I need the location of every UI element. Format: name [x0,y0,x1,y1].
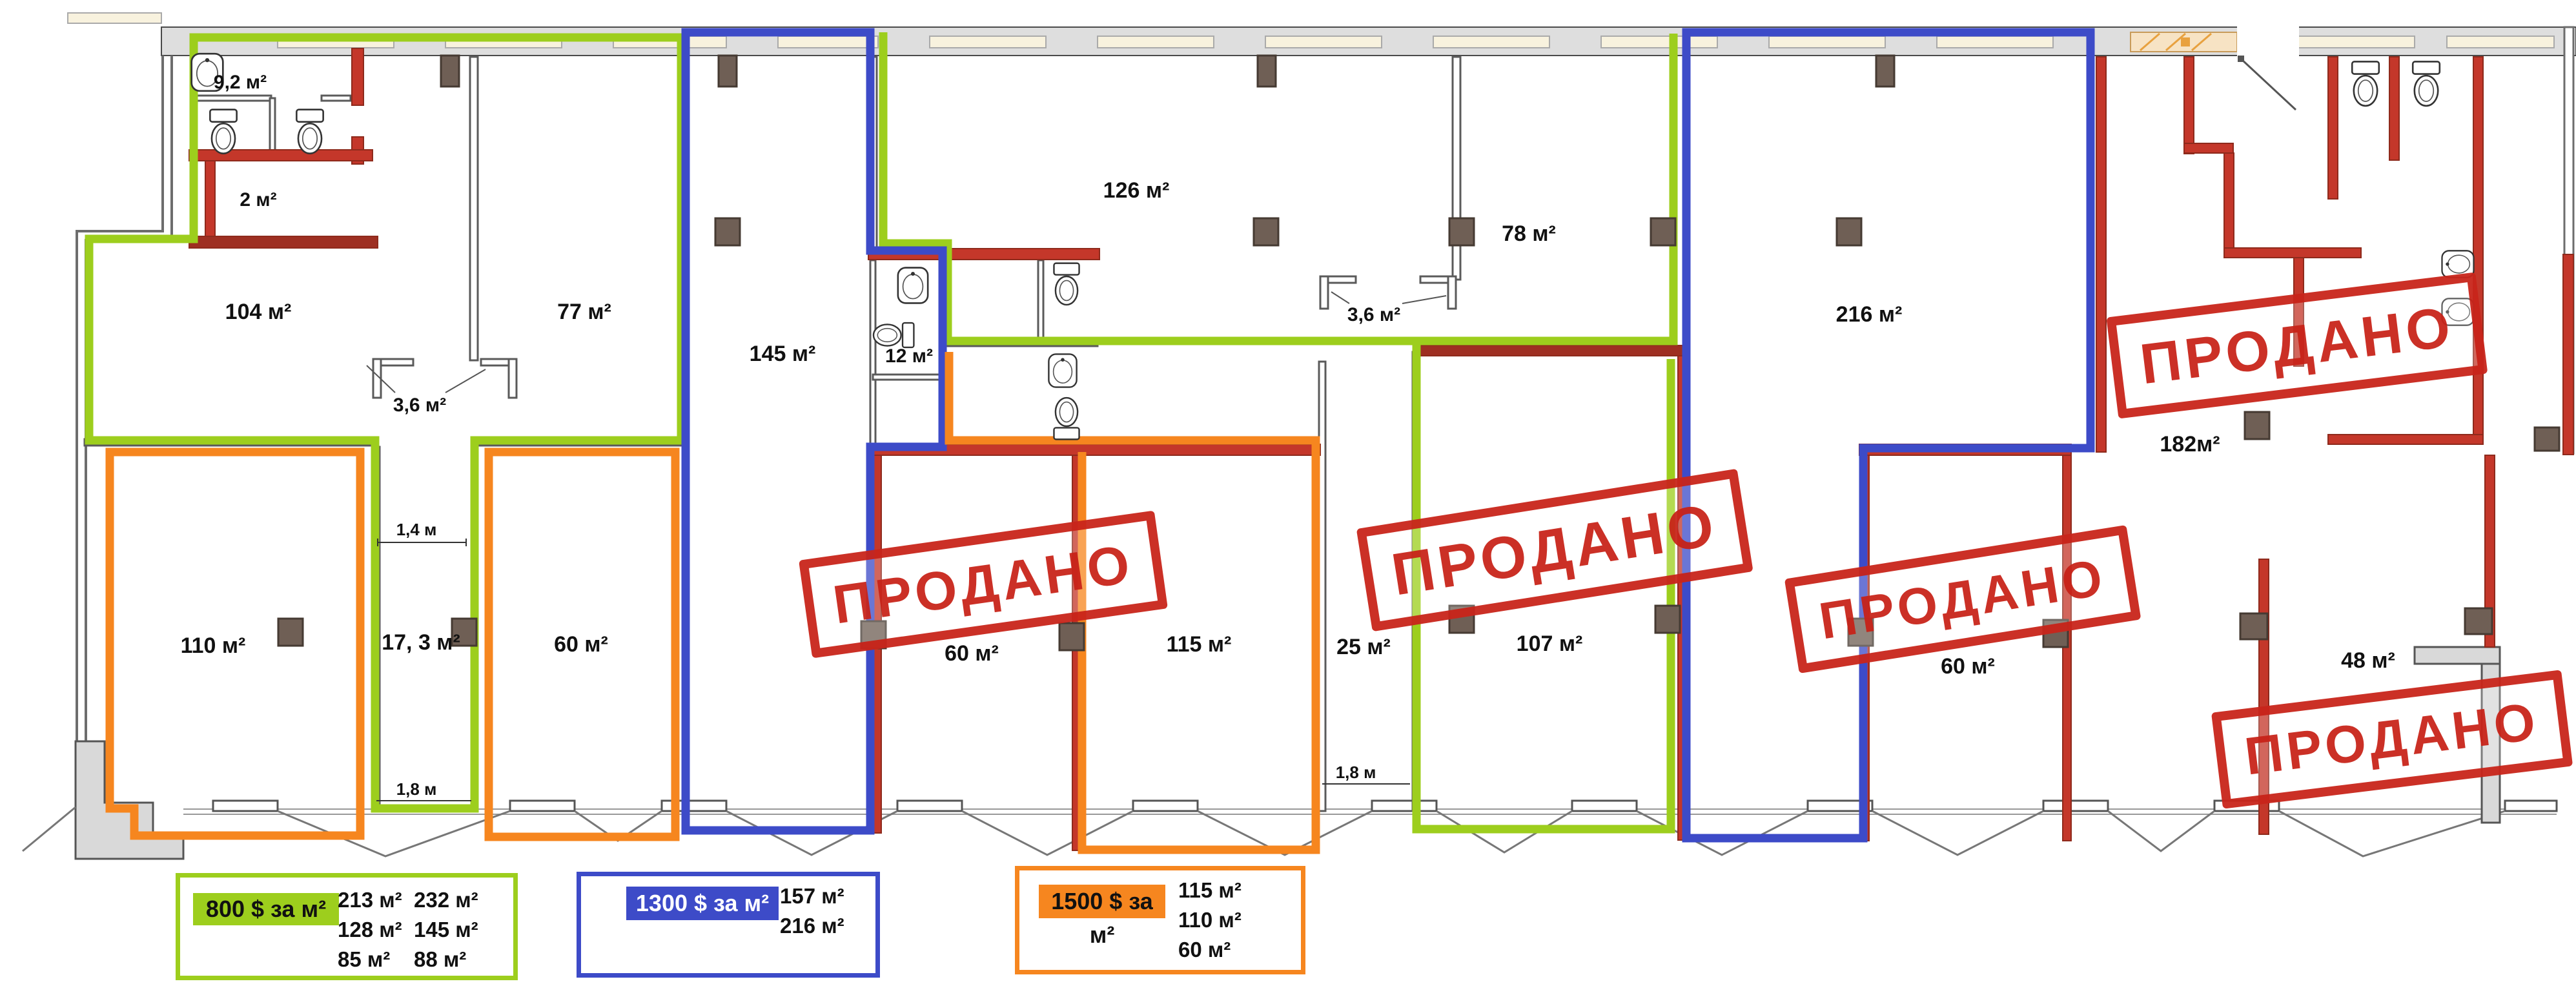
room-label-3-6-a: 3,6 м² [393,396,446,415]
interior-thin-walls [85,57,1460,811]
sink-icon [898,268,928,303]
toilet-icon [2413,61,2440,105]
toilet-icon [1054,398,1079,439]
legend-area: 88 м² [414,945,478,974]
legend-area: 115 м² [1178,876,1242,905]
room-label-12: 12 м² [885,347,933,366]
sold-stamp-text: ПРОДАНО [2136,294,2457,398]
room-label-104: 104 м² [225,301,292,323]
legend-blue-areas: 157 м² 216 м² [780,881,844,941]
room-label-216: 216 м² [1836,303,1903,325]
legend-area: 60 м² [1178,935,1242,965]
legend-green-areas-col2: 232 м² 145 м² 88 м² [414,885,478,974]
legend-area: 213 м² [338,885,402,915]
room-label-60-c: 60 м² [1941,655,1995,677]
legend-area: 216 м² [780,911,844,941]
room-label-115: 115 м² [1167,633,1232,655]
room-label-110: 110 м² [181,635,246,657]
legend-area: 157 м² [780,881,844,911]
unit-outline-green-middle [883,32,1673,341]
plan-drawing [0,0,2576,997]
legend-area: 128 м² [338,915,402,945]
room-label-60-a: 60 м² [554,633,608,655]
unit-outline-blue-216 [1686,32,2090,838]
legend-area: 145 м² [414,915,478,945]
toilet-icon [210,110,236,154]
floor-plan: 9,2 м² 2 м² 104 м² 77 м² 3,6 м² 145 м² 1… [0,0,2576,997]
unit-outline-green-left [89,37,681,808]
toilet-icon [2352,61,2379,105]
legend-area: 110 м² [1178,905,1242,935]
legend-area: 232 м² [414,885,478,915]
toilet-icon [1054,263,1079,305]
hatched-window [2131,32,2237,52]
room-label-60-b: 60 м² [945,642,999,664]
legend-blue-price-chip: 1300 $ за м² [626,887,779,920]
room-label-3-6-b: 3,6 м² [1347,305,1400,325]
dimension-label-1-8-right: 1,8 м [1336,764,1376,781]
sold-stamp-text: ПРОДАНО [2242,691,2542,787]
legend-area: 85 м² [338,945,402,974]
room-label-182: 182м² [2160,433,2220,455]
room-label-9-2: 9,2 м² [214,73,267,92]
toilet-icon [296,110,323,154]
legend-orange-price-chip: 1500 $ за м² [1039,885,1165,918]
room-label-48: 48 м² [2341,650,2395,672]
legend-orange-1500: 1500 $ за м² 115 м² 110 м² 60 м² [1015,866,1305,974]
room-label-2: 2 м² [240,190,276,210]
toilet-icon [874,323,914,347]
room-label-145: 145 м² [750,343,816,365]
sink-icon [1048,354,1076,387]
legend-green-800: 800 $ за м² 213 м² 128 м² 85 м² 232 м² 1… [176,873,518,980]
room-label-107: 107 м² [1517,633,1583,655]
legend-blue-1300: 1300 $ за м² 157 м² 216 м² [577,872,880,978]
room-label-77: 77 м² [557,301,611,323]
legend-green-price-chip: 800 $ за м² [193,893,339,925]
room-label-17-3: 17, 3 м² [382,632,460,653]
dimension-label-1-4: 1,4 м [396,521,437,538]
legend-orange-areas: 115 м² 110 м² 60 м² [1178,876,1242,965]
room-label-126: 126 м² [1103,180,1170,201]
legend-green-areas-col1: 213 м² 128 м² 85 м² [338,885,402,974]
room-label-25: 25 м² [1336,636,1391,658]
dimension-label-1-8-left: 1,8 м [396,781,437,797]
unit-outline-blue-157 [686,32,943,830]
room-label-78: 78 м² [1502,223,1556,245]
